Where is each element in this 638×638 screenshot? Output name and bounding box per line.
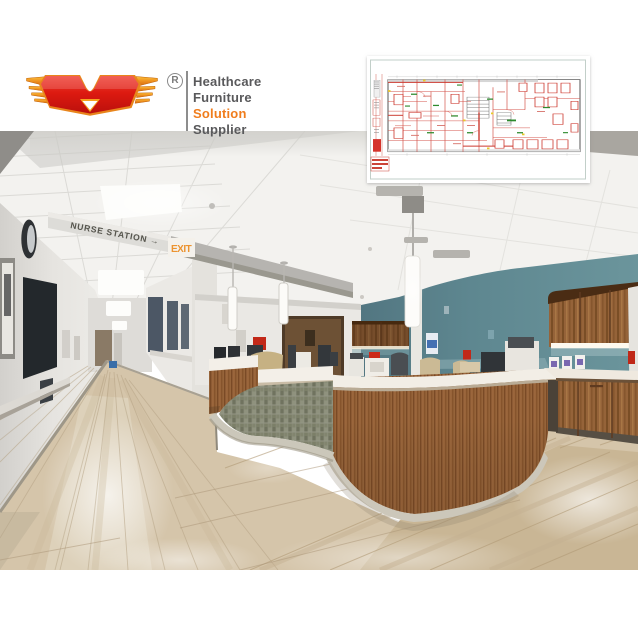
svg-text:EXIT: EXIT [171, 244, 192, 255]
